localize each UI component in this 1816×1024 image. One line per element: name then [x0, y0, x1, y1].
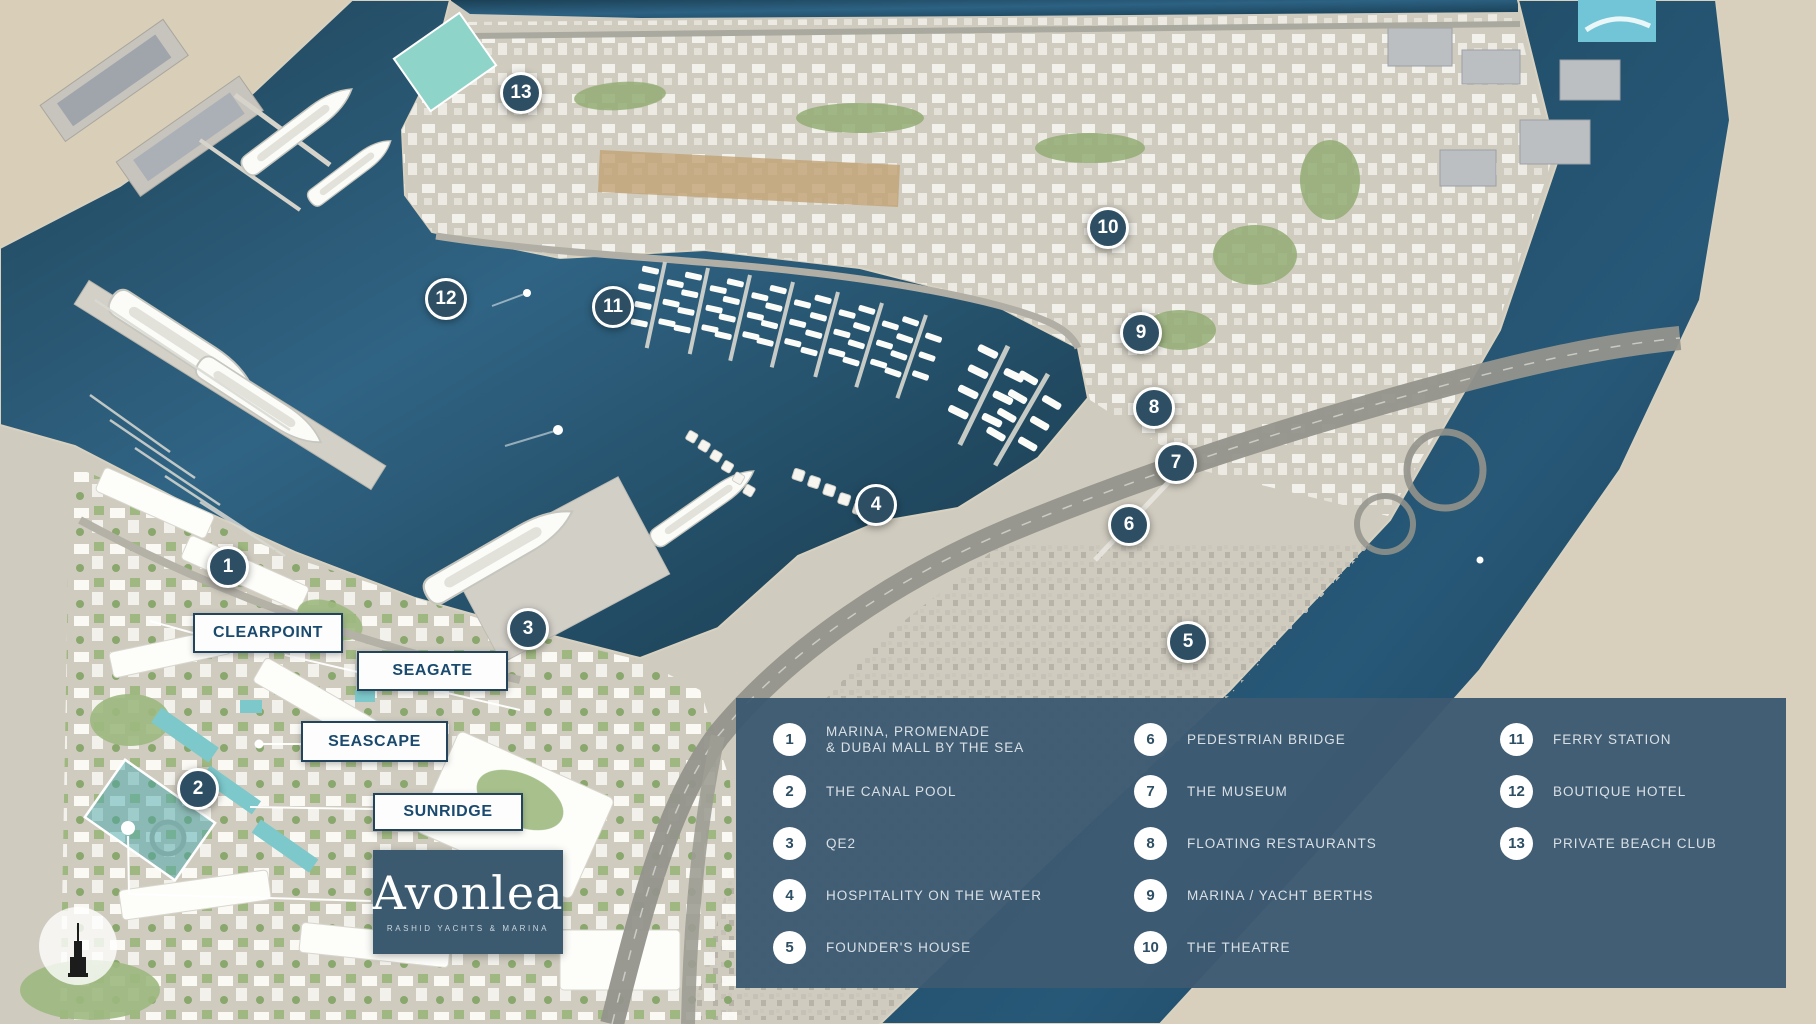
legend-badge-2: 2 [773, 775, 806, 808]
legend-badge-13: 13 [1500, 827, 1533, 860]
legend-badge-6: 6 [1134, 723, 1167, 756]
legend-item-2: 2THE CANAL POOL [773, 775, 1042, 808]
legend-badge-1: 1 [773, 723, 806, 756]
map-marker-3[interactable]: 3 [507, 608, 549, 650]
map-marker-8[interactable]: 8 [1133, 387, 1175, 429]
legend-item-10: 10THE THEATRE [1134, 931, 1377, 964]
legend-column-3: 11FERRY STATION12BOUTIQUE HOTEL13PRIVATE… [1500, 723, 1717, 860]
legend-badge-9: 9 [1134, 879, 1167, 912]
burj-khalifa-silhouette [63, 923, 93, 985]
legend-badge-12: 12 [1500, 775, 1533, 808]
legend-label-11: FERRY STATION [1553, 732, 1672, 748]
map-marker-2[interactable]: 2 [177, 768, 219, 810]
brand-logo-subtitle: RASHID YACHTS & MARINA [387, 924, 549, 933]
legend-label-10: THE THEATRE [1187, 940, 1291, 956]
wave-pool [1578, 0, 1656, 42]
legend-item-4: 4HOSPITALITY ON THE WATER [773, 879, 1042, 912]
legend-label-8: FLOATING RESTAURANTS [1187, 836, 1377, 852]
map-marker-9[interactable]: 9 [1120, 312, 1162, 354]
legend-badge-4: 4 [773, 879, 806, 912]
legend-panel: 1MARINA, PROMENADE& DUBAI MALL BY THE SE… [736, 698, 1786, 988]
map-marker-6[interactable]: 6 [1108, 504, 1150, 546]
legend-badge-11: 11 [1500, 723, 1533, 756]
legend-item-12: 12BOUTIQUE HOTEL [1500, 775, 1717, 808]
legend-label-7: THE MUSEUM [1187, 784, 1288, 800]
area-label-seagate[interactable]: SEAGATE [357, 651, 508, 691]
map-marker-7[interactable]: 7 [1155, 442, 1197, 484]
brand-logo-text: Avonlea [372, 871, 563, 915]
legend-label-12: BOUTIQUE HOTEL [1553, 784, 1686, 800]
burj-khalifa-landmark-icon [39, 907, 117, 985]
legend-item-6: 6PEDESTRIAN BRIDGE [1134, 723, 1377, 756]
legend-badge-8: 8 [1134, 827, 1167, 860]
legend-item-1: 1MARINA, PROMENADE& DUBAI MALL BY THE SE… [773, 723, 1042, 756]
map-marker-11[interactable]: 11 [592, 286, 634, 328]
legend-label-13: PRIVATE BEACH CLUB [1553, 836, 1717, 852]
legend-label-6: PEDESTRIAN BRIDGE [1187, 732, 1346, 748]
legend-badge-5: 5 [773, 931, 806, 964]
legend-item-7: 7THE MUSEUM [1134, 775, 1377, 808]
map-marker-12[interactable]: 12 [425, 278, 467, 320]
legend-label-3: QE2 [826, 836, 856, 852]
masterplan-page: CLEARPOINTSEAGATESEASCAPESUNRIDGE 123456… [0, 0, 1816, 1024]
legend-label-2: THE CANAL POOL [826, 784, 957, 800]
legend-label-5: FOUNDER'S HOUSE [826, 940, 971, 956]
legend-item-9: 9MARINA / YACHT BERTHS [1134, 879, 1377, 912]
area-label-seascape[interactable]: SEASCAPE [301, 721, 448, 762]
map-marker-1[interactable]: 1 [207, 546, 249, 588]
legend-item-8: 8FLOATING RESTAURANTS [1134, 827, 1377, 860]
legend-column-2: 6PEDESTRIAN BRIDGE7THE MUSEUM8FLOATING R… [1134, 723, 1377, 964]
legend-badge-7: 7 [1134, 775, 1167, 808]
map-marker-4[interactable]: 4 [855, 484, 897, 526]
area-label-sunridge[interactable]: SUNRIDGE [373, 793, 523, 831]
legend-label-9: MARINA / YACHT BERTHS [1187, 888, 1374, 904]
map-marker-10[interactable]: 10 [1087, 207, 1129, 249]
legend-item-11: 11FERRY STATION [1500, 723, 1717, 756]
legend-column-1: 1MARINA, PROMENADE& DUBAI MALL BY THE SE… [773, 723, 1042, 964]
legend-badge-10: 10 [1134, 931, 1167, 964]
legend-item-13: 13PRIVATE BEACH CLUB [1500, 827, 1717, 860]
legend-item-3: 3QE2 [773, 827, 1042, 860]
area-label-clearpoint[interactable]: CLEARPOINT [193, 613, 343, 653]
map-marker-13[interactable]: 13 [500, 72, 542, 114]
legend-label-1: MARINA, PROMENADE& DUBAI MALL BY THE SEA [826, 724, 1024, 756]
legend-label-4: HOSPITALITY ON THE WATER [826, 888, 1042, 904]
legend-badge-3: 3 [773, 827, 806, 860]
brand-plate: Avonlea RASHID YACHTS & MARINA [373, 850, 563, 954]
map-marker-5[interactable]: 5 [1167, 621, 1209, 663]
leader-dot [255, 740, 264, 749]
legend-item-5: 5FOUNDER'S HOUSE [773, 931, 1042, 964]
